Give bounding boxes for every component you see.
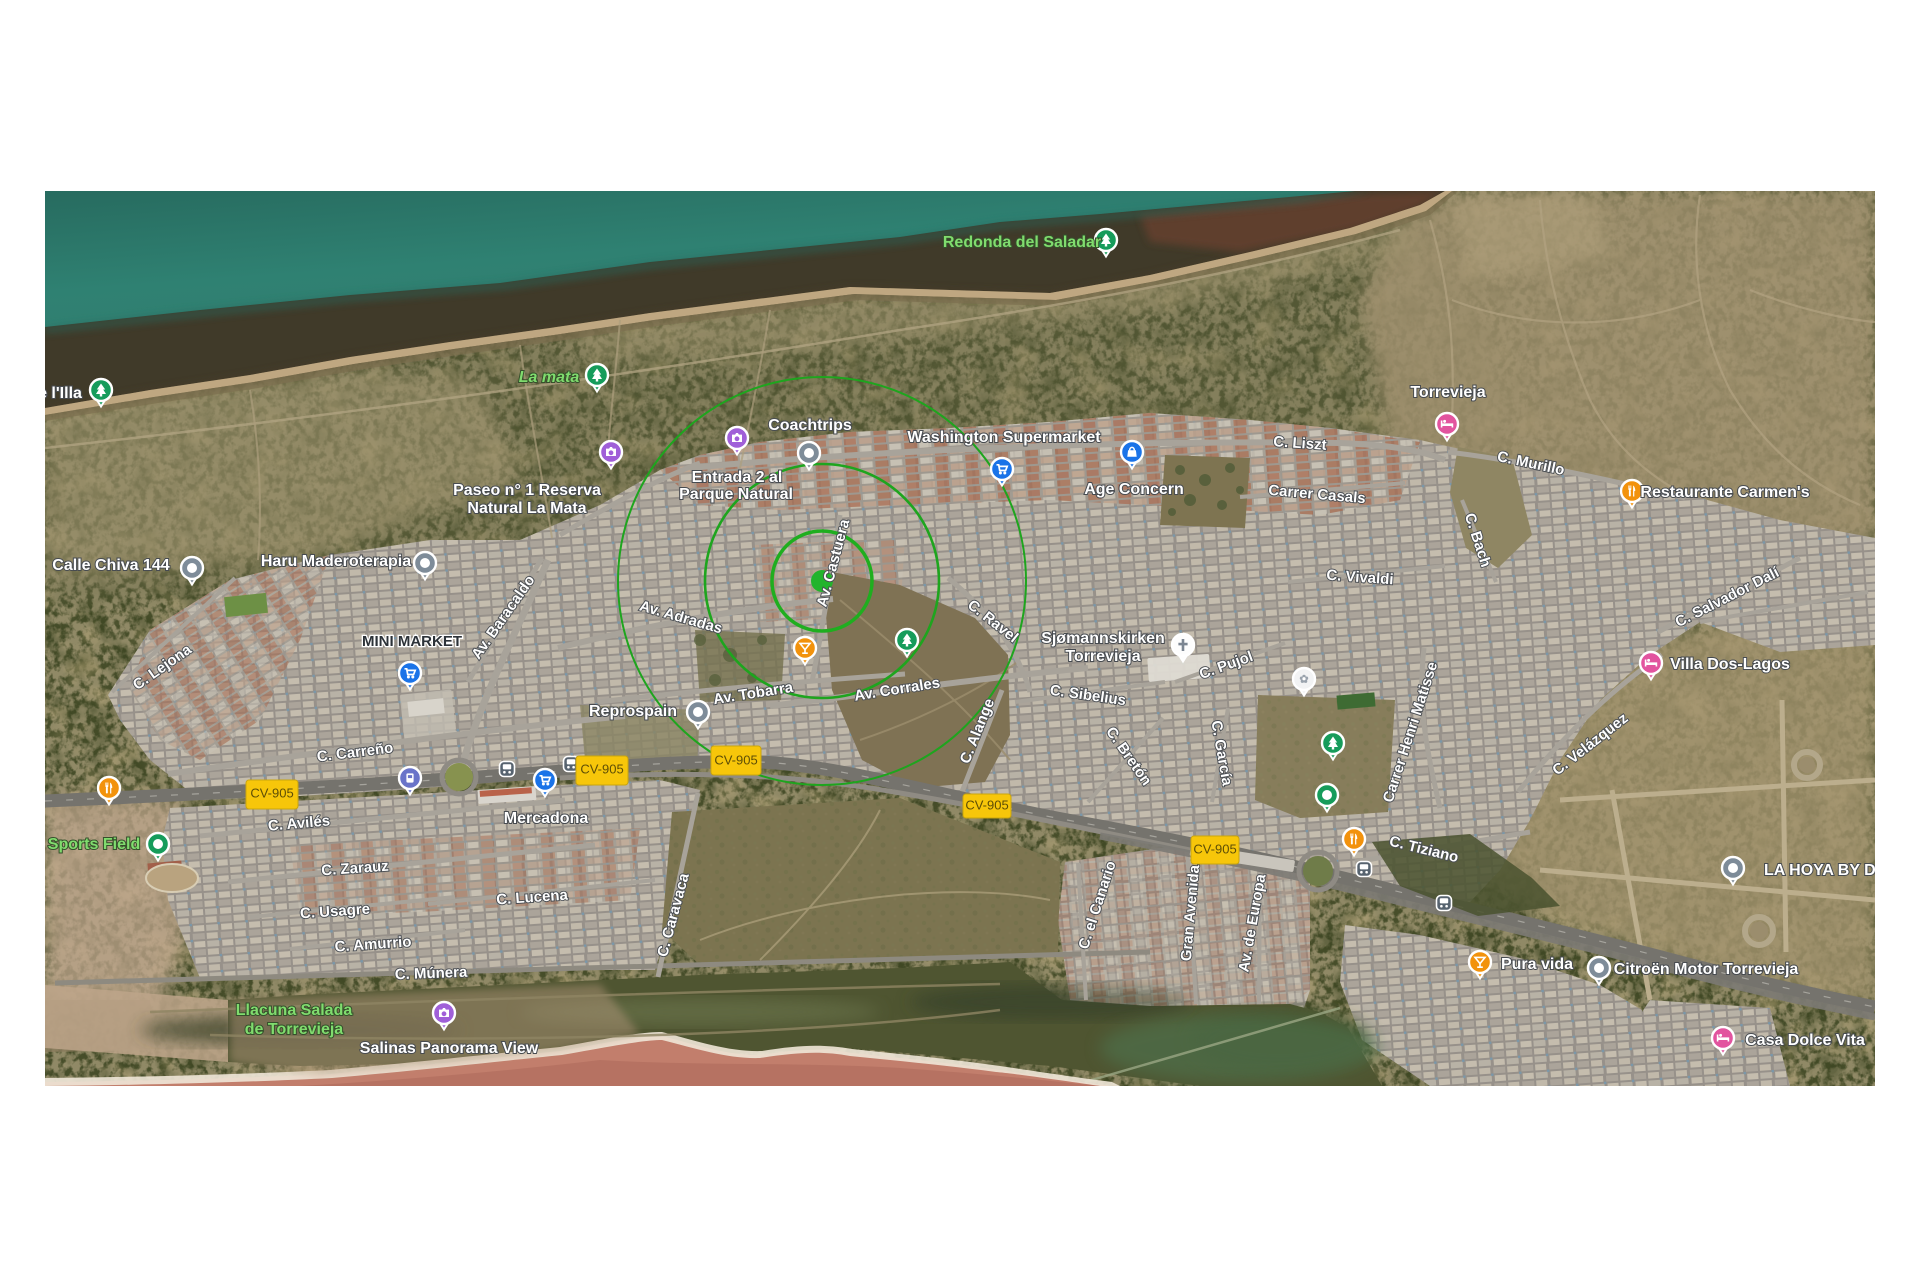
svg-text:de Torrevieja: de Torrevieja xyxy=(245,1021,344,1038)
svg-text:Age Concern: Age Concern xyxy=(1084,481,1184,498)
svg-text:CV-905: CV-905 xyxy=(714,753,757,768)
svg-text:CV-905: CV-905 xyxy=(250,786,293,801)
svg-text:Haru Maderoterapia: Haru Maderoterapia xyxy=(261,553,411,570)
svg-text:Washington Supermarket: Washington Supermarket xyxy=(907,429,1101,446)
svg-text:Villa Dos-Lagos: Villa Dos-Lagos xyxy=(1670,656,1790,673)
svg-text:Parque Natural: Parque Natural xyxy=(679,486,793,503)
svg-text:Entrada 2 al: Entrada 2 al xyxy=(692,469,783,486)
svg-text:Redonda del Saladar: Redonda del Saladar xyxy=(943,234,1101,251)
svg-text:Citroën Motor Torrevieja: Citroën Motor Torrevieja xyxy=(1614,961,1799,978)
svg-text:Llacuna Salada: Llacuna Salada xyxy=(236,1002,353,1019)
svg-text:Restaurante Carmen's: Restaurante Carmen's xyxy=(1640,484,1809,501)
svg-text:Reprospain: Reprospain xyxy=(589,703,677,720)
svg-text:Salinas Panorama View: Salinas Panorama View xyxy=(360,1040,539,1057)
svg-text:Casa Dolce Vita: Casa Dolce Vita xyxy=(1745,1032,1865,1049)
svg-text:CV-905: CV-905 xyxy=(1193,842,1236,857)
svg-text:CV-905: CV-905 xyxy=(580,762,623,777)
svg-text:Pura vida: Pura vida xyxy=(1501,956,1573,973)
svg-text:Sjømannskirken: Sjømannskirken xyxy=(1041,630,1165,647)
svg-text:MINI MARKET: MINI MARKET xyxy=(362,633,462,650)
svg-text:Sports Field: Sports Field xyxy=(48,836,140,853)
svg-text:Mercadona: Mercadona xyxy=(504,810,589,827)
svg-text:Paseo n° 1 Reserva: Paseo n° 1 Reserva xyxy=(453,482,601,499)
svg-text:Torrevieja: Torrevieja xyxy=(1065,648,1140,665)
svg-text:Torrevieja: Torrevieja xyxy=(1410,384,1485,401)
svg-text:Calle Chiva 144: Calle Chiva 144 xyxy=(52,557,170,574)
svg-text:La mata: La mata xyxy=(519,369,580,386)
svg-text:Natural La Mata: Natural La Mata xyxy=(467,500,586,517)
svg-text:CV-905: CV-905 xyxy=(965,798,1008,813)
svg-text:Coachtrips: Coachtrips xyxy=(768,417,852,434)
svg-text:C. Múnera: C. Múnera xyxy=(394,964,468,984)
